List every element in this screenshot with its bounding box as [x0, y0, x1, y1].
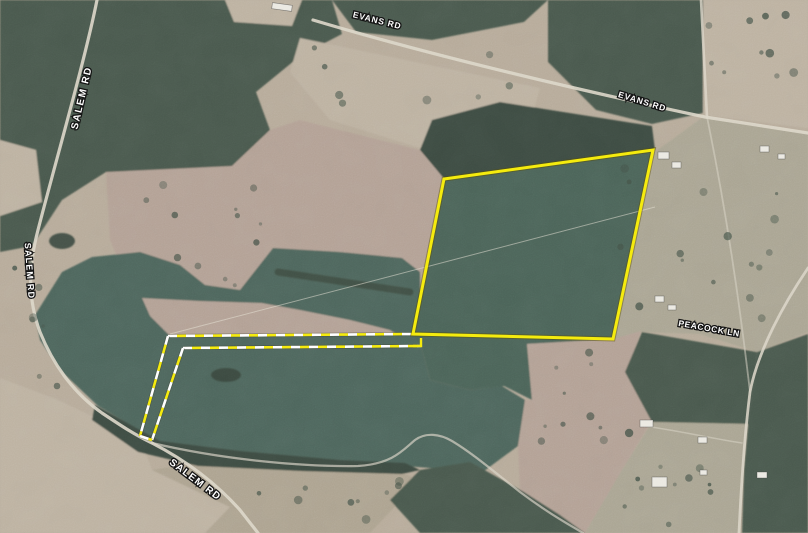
- patch-texture: [0, 0, 808, 533]
- aerial-map-view: EVANS RDEVANS RDSALEM RDSALEM RDSALEM RD…: [0, 0, 808, 533]
- satellite-image: EVANS RDEVANS RDSALEM RDSALEM RDSALEM RD…: [0, 0, 808, 533]
